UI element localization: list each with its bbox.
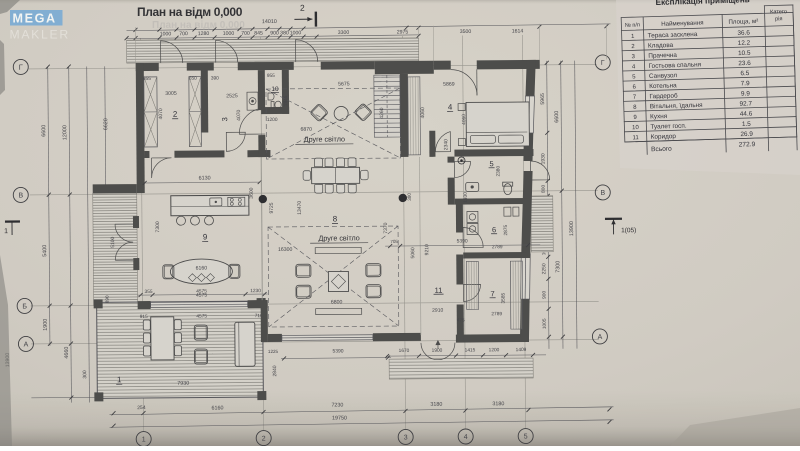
svg-text:6160: 6160 (196, 266, 208, 272)
svg-text:26.9: 26.9 (740, 131, 753, 138)
svg-text:9.9: 9.9 (741, 90, 751, 97)
svg-text:4575: 4575 (196, 293, 207, 299)
svg-text:11: 11 (633, 135, 640, 141)
svg-text:2840: 2840 (272, 365, 278, 376)
svg-text:7.9: 7.9 (741, 80, 751, 87)
svg-text:3500: 3500 (460, 29, 472, 35)
svg-text:6870: 6870 (300, 127, 312, 133)
svg-text:В: В (600, 190, 605, 197)
svg-text:6130: 6130 (199, 175, 211, 181)
svg-text:6600: 6600 (554, 111, 560, 123)
svg-text:955: 955 (267, 73, 275, 79)
svg-text:12.2: 12.2 (738, 40, 751, 47)
svg-text:1000: 1000 (290, 30, 302, 36)
svg-text:845: 845 (254, 31, 263, 37)
svg-text:3005: 3005 (165, 91, 177, 97)
svg-text:7300: 7300 (555, 261, 561, 273)
svg-text:Всього: Всього (651, 146, 672, 154)
svg-text:1900: 1900 (432, 348, 443, 354)
svg-text:13900: 13900 (5, 353, 11, 368)
svg-text:Санвузол: Санвузол (649, 72, 678, 80)
svg-text:900: 900 (270, 30, 279, 36)
svg-text:3180: 3180 (492, 401, 504, 407)
svg-text:Прачечна: Прачечна (648, 52, 677, 60)
svg-text:7: 7 (490, 289, 494, 298)
svg-text:Вітальня, їдальня: Вітальня, їдальня (650, 101, 704, 111)
svg-text:2910: 2910 (432, 308, 443, 314)
svg-text:Площа, м²: Площа, м² (728, 18, 758, 26)
svg-text:355: 355 (145, 289, 153, 295)
svg-text:MAKLER: MAKLER (10, 28, 70, 42)
svg-text:16300: 16300 (278, 247, 293, 253)
svg-text:4060: 4060 (420, 107, 426, 118)
svg-text:2875: 2875 (503, 224, 509, 235)
svg-text:1000: 1000 (160, 31, 172, 37)
svg-text:6160: 6160 (211, 405, 223, 411)
svg-text:1930: 1930 (463, 192, 469, 203)
svg-text:4070: 4070 (236, 109, 242, 120)
svg-text:254: 254 (137, 405, 146, 411)
svg-text:3180: 3180 (430, 402, 442, 408)
svg-text:5965: 5965 (540, 93, 546, 105)
svg-text:1614: 1614 (512, 29, 524, 35)
svg-text:Катего: Катего (770, 9, 787, 15)
svg-text:12000: 12000 (62, 125, 68, 140)
svg-text:5060: 5060 (410, 247, 416, 258)
svg-text:5390: 5390 (457, 238, 468, 244)
svg-text:4260: 4260 (379, 107, 385, 118)
svg-text:3: 3 (220, 117, 229, 121)
svg-text:705: 705 (390, 239, 398, 244)
svg-text:6620: 6620 (103, 118, 109, 130)
svg-text:10: 10 (271, 86, 279, 93)
svg-text:9: 9 (203, 233, 208, 242)
svg-text:2380: 2380 (496, 166, 502, 177)
svg-text:1930: 1930 (540, 153, 546, 164)
svg-text:Б: Б (22, 303, 27, 310)
svg-text:Г: Г (601, 60, 605, 67)
svg-text:В: В (18, 192, 23, 199)
svg-text:2340: 2340 (443, 139, 449, 150)
svg-text:700: 700 (241, 31, 250, 37)
svg-text:Гардероб: Гардероб (649, 91, 678, 100)
svg-text:5100: 5100 (110, 236, 116, 247)
svg-text:1200: 1200 (267, 117, 278, 123)
svg-text:2975: 2975 (397, 29, 409, 35)
svg-text:1670: 1670 (399, 348, 410, 354)
svg-text:4: 4 (464, 434, 468, 441)
svg-text:5: 5 (489, 159, 493, 168)
svg-text:1000: 1000 (223, 31, 235, 37)
svg-text:1: 1 (117, 375, 122, 384)
svg-text:5390: 5390 (332, 348, 343, 354)
svg-text:3300: 3300 (338, 30, 350, 36)
svg-text:1005: 1005 (542, 318, 548, 329)
svg-text:9725: 9725 (269, 202, 275, 213)
svg-text:5: 5 (524, 434, 528, 441)
svg-text:Кладова: Кладова (648, 42, 674, 50)
svg-text:2789: 2789 (491, 311, 502, 317)
svg-text:1200: 1200 (489, 347, 500, 353)
svg-text:1415: 1415 (465, 347, 476, 353)
svg-text:19750: 19750 (332, 415, 347, 421)
svg-text:650: 650 (189, 76, 197, 82)
svg-text:3: 3 (404, 434, 408, 441)
svg-text:800: 800 (541, 185, 547, 193)
svg-text:Коридор: Коридор (651, 133, 677, 141)
svg-text:Друге світло: Друге світло (304, 134, 345, 143)
svg-text:4660: 4660 (64, 347, 70, 359)
svg-text:700: 700 (179, 31, 188, 37)
svg-text:92.7: 92.7 (739, 100, 752, 107)
svg-text:36.6: 36.6 (737, 30, 750, 37)
svg-text:№ п/п: № п/п (625, 22, 640, 28)
svg-text:План на відм 0,000: План на відм 0,000 (152, 20, 245, 31)
svg-text:А: А (598, 334, 603, 341)
svg-text:2: 2 (173, 110, 178, 119)
svg-text:4575: 4575 (196, 314, 207, 320)
svg-text:1: 1 (142, 437, 146, 444)
svg-text:4: 4 (448, 103, 453, 112)
svg-text:7930: 7930 (177, 381, 189, 387)
svg-text:3585: 3585 (501, 292, 507, 303)
svg-text:1225: 1225 (268, 349, 279, 354)
svg-text:10: 10 (632, 125, 640, 131)
svg-text:Кухня: Кухня (650, 113, 668, 121)
svg-text:300: 300 (82, 370, 88, 379)
svg-text:5675: 5675 (338, 81, 350, 87)
svg-text:Друге світло: Друге світло (318, 233, 359, 242)
svg-text:890: 890 (105, 295, 110, 303)
svg-text:13470: 13470 (297, 201, 303, 215)
svg-text:2: 2 (300, 3, 305, 13)
svg-text:А: А (24, 341, 29, 348)
svg-text:44.6: 44.6 (740, 110, 753, 117)
svg-text:7370: 7370 (383, 222, 389, 233)
svg-text:7300: 7300 (155, 221, 161, 232)
svg-text:5869: 5869 (443, 82, 455, 88)
svg-text:6: 6 (492, 225, 496, 234)
svg-text:6600: 6600 (41, 125, 47, 137)
svg-text:4070: 4070 (158, 108, 164, 119)
svg-text:23.6: 23.6 (738, 60, 751, 67)
svg-text:1409: 1409 (516, 347, 527, 353)
svg-text:Туалет госп.: Туалет госп. (650, 123, 687, 131)
svg-text:Найменування: Найменування (661, 20, 704, 28)
svg-text:6800: 6800 (331, 299, 343, 305)
svg-text:655: 655 (143, 76, 151, 82)
svg-text:380: 380 (280, 30, 289, 36)
svg-text:Котельна: Котельна (649, 82, 677, 90)
svg-text:900: 900 (542, 291, 548, 299)
svg-text:10.5: 10.5 (738, 50, 751, 57)
svg-text:1280: 1280 (198, 31, 210, 37)
svg-text:4060: 4060 (461, 114, 467, 125)
svg-text:1900: 1900 (43, 319, 49, 331)
svg-text:1230: 1230 (250, 288, 261, 294)
svg-text:14010: 14010 (262, 19, 277, 25)
svg-text:7230: 7230 (331, 402, 343, 408)
svg-text:11: 11 (435, 286, 443, 295)
svg-text:2525: 2525 (226, 93, 238, 99)
svg-text:8: 8 (333, 214, 338, 223)
svg-text:Тераса засклена: Тераса засклена (648, 31, 698, 39)
svg-text:5400: 5400 (42, 245, 48, 257)
svg-text:6.5: 6.5 (740, 70, 750, 77)
svg-text:3600: 3600 (249, 187, 255, 198)
svg-text:1.5: 1.5 (742, 121, 752, 128)
svg-text:13900: 13900 (569, 221, 575, 236)
svg-text:1(05): 1(05) (621, 227, 636, 234)
svg-text:915: 915 (140, 314, 148, 320)
svg-text:План на відм 0,000: План на відм 0,000 (137, 5, 243, 19)
svg-text:475: 475 (457, 317, 465, 322)
svg-text:рія: рія (775, 16, 783, 22)
svg-text:380: 380 (407, 193, 412, 201)
svg-text:1: 1 (4, 228, 8, 235)
svg-text:2250: 2250 (541, 263, 547, 274)
svg-text:MEGA: MEGA (13, 12, 57, 26)
svg-text:272.9: 272.9 (739, 141, 756, 148)
svg-text:2: 2 (262, 436, 266, 443)
svg-text:Г: Г (19, 63, 23, 72)
svg-text:390: 390 (211, 75, 219, 81)
